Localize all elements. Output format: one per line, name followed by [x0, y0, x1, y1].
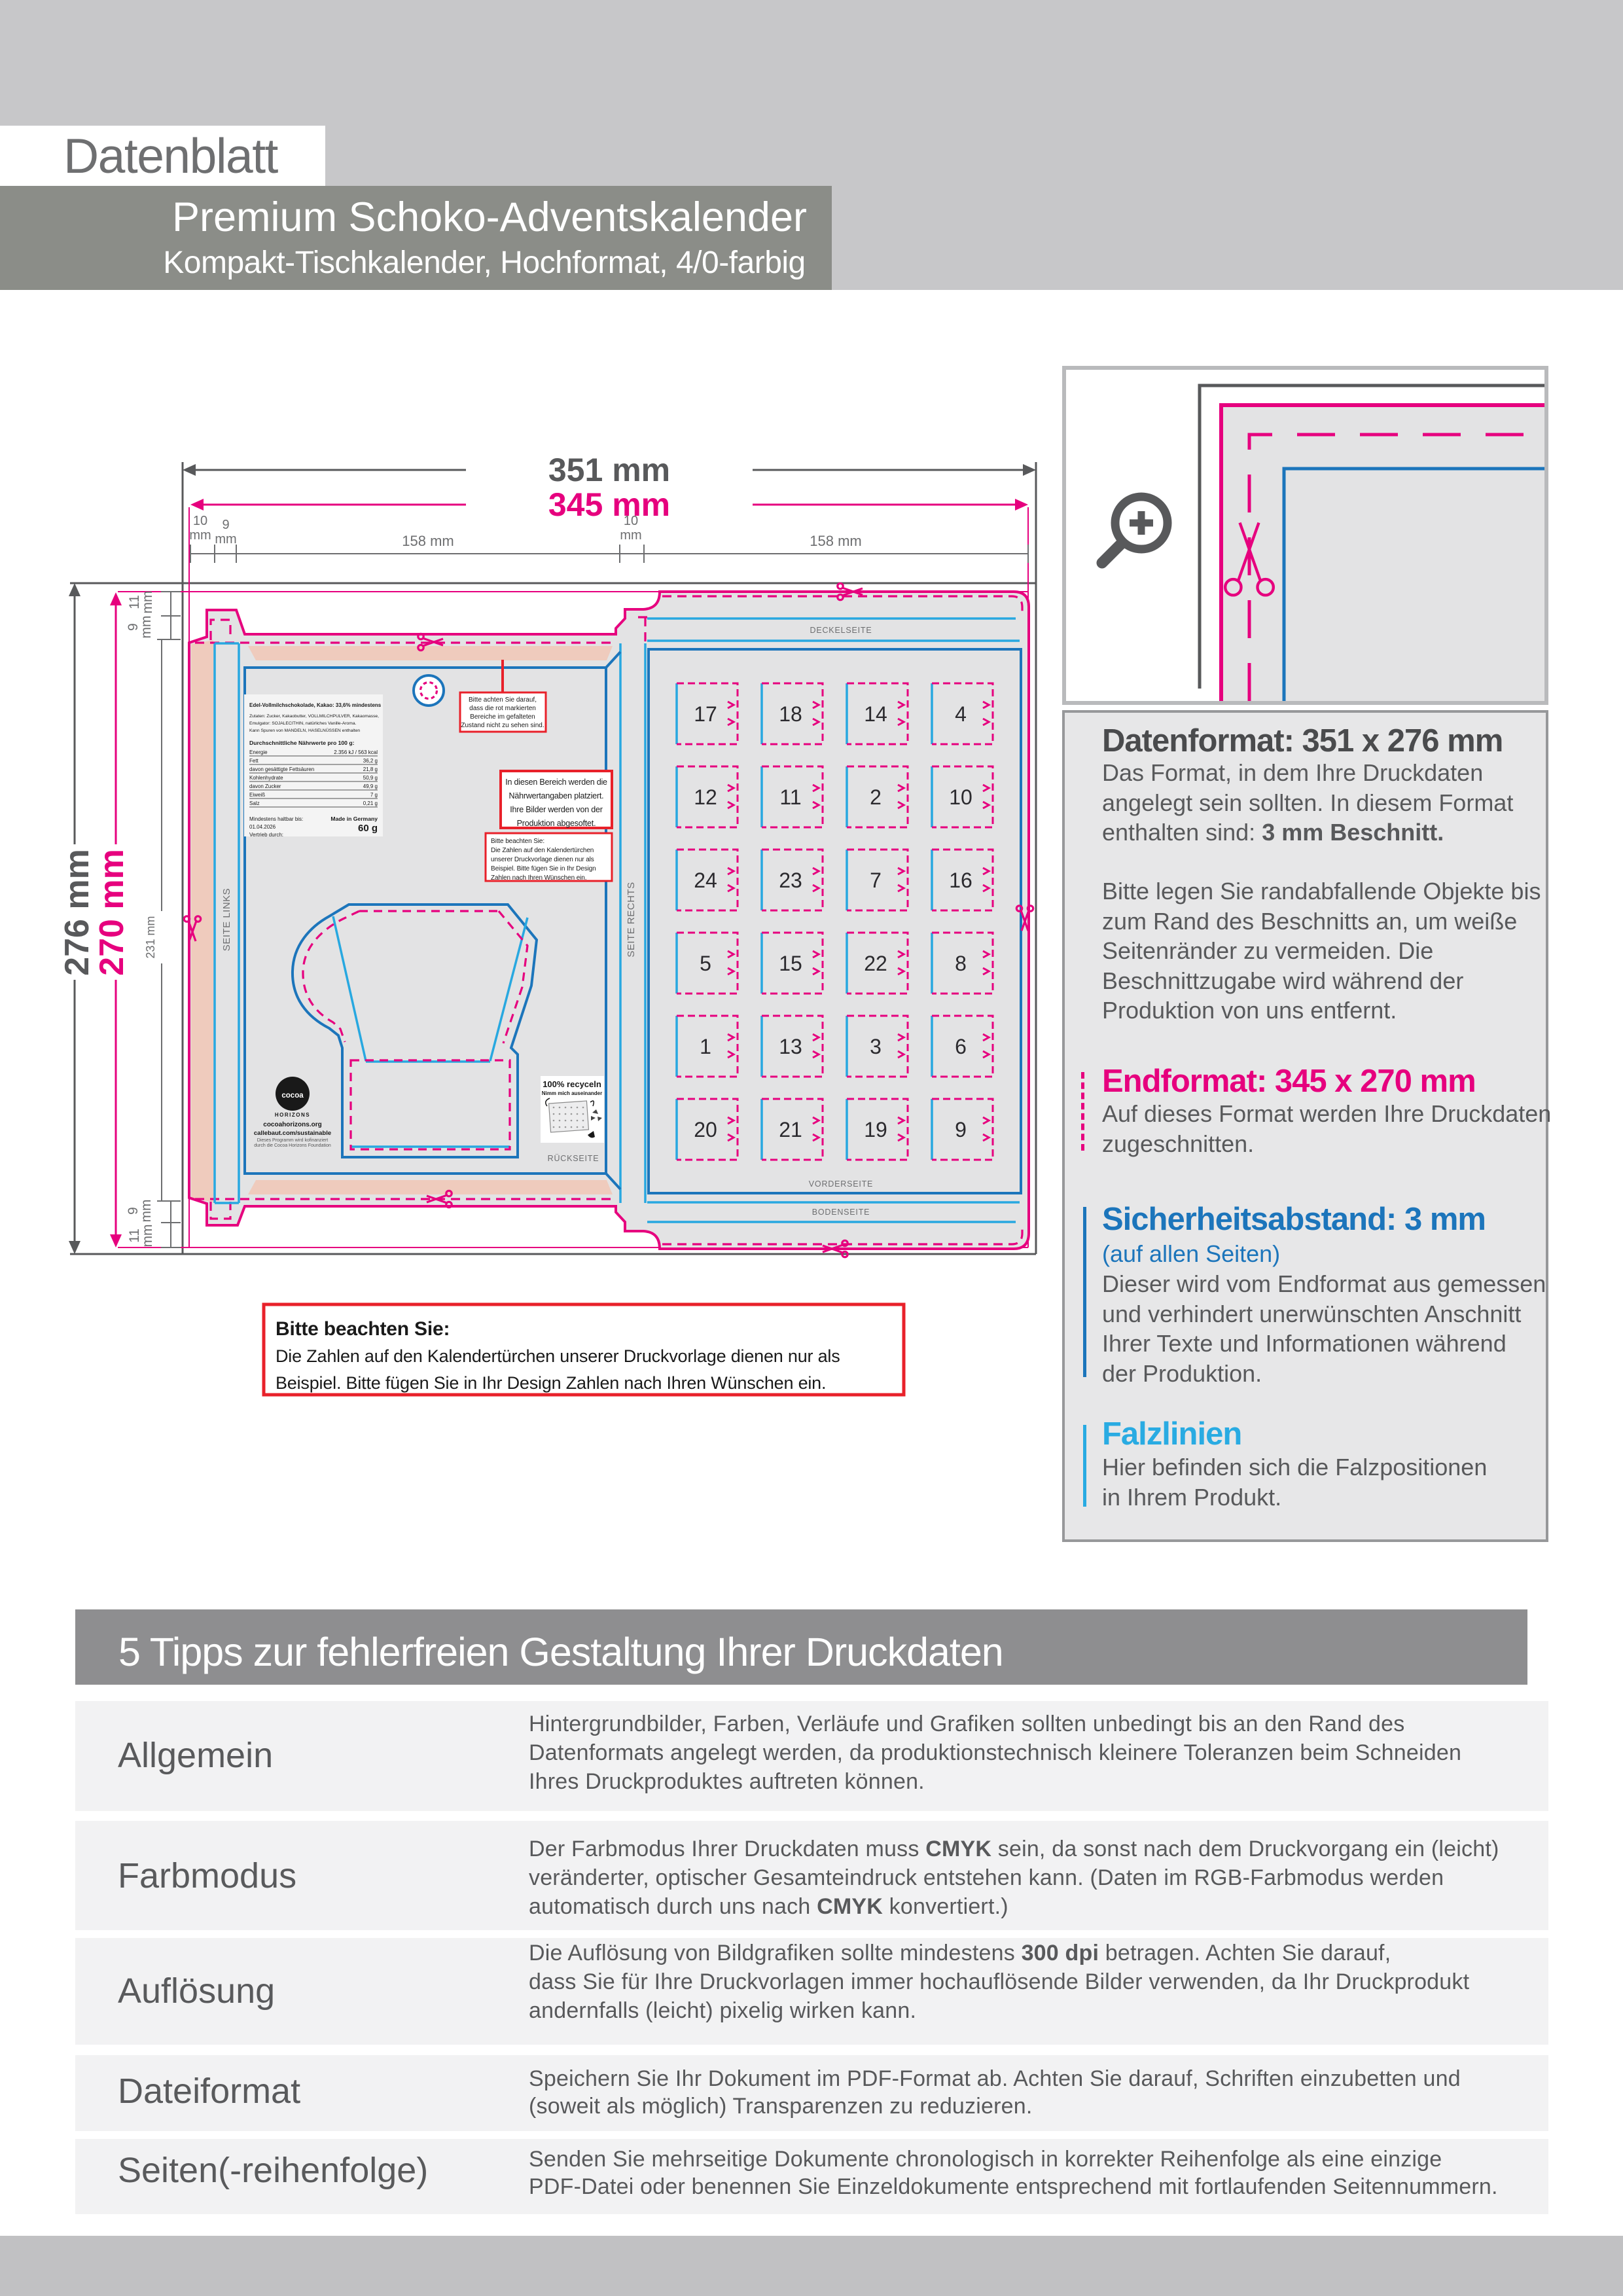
svg-text:mm: mm [139, 1200, 154, 1223]
svg-text:Zustand nicht zu sehen sind.: Zustand nicht zu sehen sind. [461, 722, 544, 729]
svg-text:mm: mm [140, 1225, 155, 1247]
svg-text:7: 7 [870, 869, 882, 892]
svg-text:VORDERSEITE: VORDERSEITE [809, 1179, 873, 1189]
svg-text:9: 9 [222, 518, 229, 532]
svg-text:36,2 g: 36,2 g [363, 758, 378, 764]
svg-text:3: 3 [870, 1035, 882, 1058]
svg-text:In diesen Bereich werden die: In diesen Bereich werden die [505, 778, 607, 787]
svg-text:6: 6 [955, 1035, 967, 1058]
svg-text:12: 12 [694, 785, 717, 809]
svg-text:mm: mm [140, 591, 155, 614]
svg-text:21,8 g: 21,8 g [363, 766, 378, 772]
svg-text:Energie: Energie [249, 749, 268, 755]
svg-text:1: 1 [700, 1035, 711, 1058]
svg-text:18: 18 [779, 702, 802, 726]
svg-text:24: 24 [694, 869, 717, 892]
svg-text:10: 10 [624, 514, 638, 528]
svg-text:mm: mm [215, 532, 236, 547]
svg-text:15: 15 [779, 952, 802, 975]
svg-text:mm: mm [620, 528, 641, 543]
svg-text:21: 21 [779, 1118, 802, 1141]
svg-text:Mindestens haltbar bis:: Mindestens haltbar bis: [249, 816, 303, 822]
svg-text:Bereiche im gefalteten: Bereiche im gefalteten [470, 713, 535, 721]
svg-text:Eiweiß: Eiweiß [249, 792, 265, 798]
svg-text:60 g: 60 g [358, 823, 378, 834]
svg-text:callebaut.com/sustainable: callebaut.com/sustainable [254, 1130, 331, 1137]
svg-text:20: 20 [694, 1118, 717, 1141]
svg-text:Vertrieb durch:: Vertrieb durch: [249, 832, 283, 838]
svg-text:Salz: Salz [249, 800, 260, 806]
svg-text:SEITE RECHTS: SEITE RECHTS [626, 882, 637, 957]
svg-text:270 mm: 270 mm [93, 849, 131, 976]
svg-text:dass die rot markierten: dass die rot markierten [469, 705, 536, 712]
svg-text:Made in Germany: Made in Germany [330, 816, 378, 822]
svg-text:mm: mm [189, 528, 211, 543]
svg-text:Nährwertangaben platziert.: Nährwertangaben platziert. [509, 791, 604, 800]
svg-text:19: 19 [864, 1118, 887, 1141]
svg-text:Zutaten: Zucker, Kakaobutter,: Zutaten: Zucker, Kakaobutter, VOLLMILCHP… [249, 714, 379, 719]
svg-text:davon gesättigte Fettsäuren: davon gesättigte Fettsäuren [249, 766, 314, 772]
svg-text:RÜCKSEITE: RÜCKSEITE [548, 1154, 599, 1163]
svg-text:DECKELSEITE: DECKELSEITE [810, 626, 872, 635]
svg-text:Die Zahlen auf den Kalendertür: Die Zahlen auf den Kalendertürchen [491, 847, 594, 854]
svg-text:unserer Druckvorlage dienen nu: unserer Druckvorlage dienen nur als [491, 856, 594, 863]
svg-text:23: 23 [779, 869, 802, 892]
svg-text:Bitte beachten Sie:: Bitte beachten Sie: [491, 838, 544, 845]
svg-text:Bitte achten Sie darauf,: Bitte achten Sie darauf, [469, 696, 537, 704]
svg-text:Dieses Programm wird kofinanzi: Dieses Programm wird kofinanziert [257, 1138, 329, 1143]
svg-text:22: 22 [864, 952, 887, 975]
svg-text:10: 10 [193, 514, 207, 528]
svg-text:231 mm: 231 mm [144, 916, 157, 958]
svg-text:Zahlen nach Ihren Wünschen ein: Zahlen nach Ihren Wünschen ein. [491, 874, 586, 882]
svg-text:01.04.2026: 01.04.2026 [249, 824, 276, 830]
svg-text:Produktion abgesoftet.: Produktion abgesoftet. [517, 819, 596, 828]
svg-text:4: 4 [955, 702, 967, 726]
svg-text:17: 17 [694, 702, 717, 726]
svg-text:SEITE LINKS: SEITE LINKS [221, 888, 232, 951]
svg-text:49,9 g: 49,9 g [363, 783, 378, 789]
svg-text:Beispiel. Bitte fügen Sie in I: Beispiel. Bitte fügen Sie in Ihr Design … [276, 1373, 826, 1393]
svg-text:Fett: Fett [249, 758, 259, 764]
svg-text:mm: mm [139, 616, 154, 639]
svg-text:158 mm: 158 mm [402, 533, 454, 549]
svg-text:13: 13 [779, 1035, 802, 1058]
svg-text:11: 11 [779, 785, 801, 809]
svg-text:100% recyceln: 100% recyceln [543, 1079, 601, 1089]
svg-text:0,21 g: 0,21 g [363, 800, 378, 806]
svg-text:cocoahorizons.org: cocoahorizons.org [263, 1121, 321, 1128]
svg-text:Edel-Vollmilchschokolade, Kaka: Edel-Vollmilchschokolade, Kakao: 33,6% m… [249, 702, 382, 708]
svg-text:158 mm: 158 mm [810, 533, 861, 549]
svg-text:davon Zucker: davon Zucker [249, 783, 281, 789]
svg-text:HORIZONS: HORIZONS [275, 1112, 310, 1118]
svg-text:16: 16 [949, 869, 972, 892]
svg-text:8: 8 [955, 952, 967, 975]
svg-text:Kann Spuren von MANDELN, HASEL: Kann Spuren von MANDELN, HASELNÜSSEN ent… [249, 728, 360, 733]
svg-text:9: 9 [955, 1118, 967, 1141]
svg-text:345 mm: 345 mm [548, 486, 670, 523]
svg-text:Kohlenhydrate: Kohlenhydrate [249, 775, 283, 781]
svg-text:cocoa: cocoa [281, 1092, 304, 1100]
svg-text:Beispiel. Bitte fügen Sie in I: Beispiel. Bitte fügen Sie in Ihr Design [491, 865, 596, 872]
svg-text:5: 5 [700, 952, 711, 975]
svg-text:2.356 kJ / 563 kcal: 2.356 kJ / 563 kcal [334, 749, 378, 755]
svg-text:2: 2 [870, 785, 882, 809]
svg-text:BODENSEITE: BODENSEITE [812, 1208, 870, 1217]
svg-text:351 mm: 351 mm [548, 452, 670, 488]
svg-text:7 g: 7 g [370, 792, 378, 798]
svg-text:Bitte beachten Sie:: Bitte beachten Sie: [276, 1318, 450, 1340]
svg-text:Die Zahlen auf den Kalendertür: Die Zahlen auf den Kalendertürchen unser… [276, 1346, 840, 1366]
svg-text:Emulgator: SOJALECITHIN, natür: Emulgator: SOJALECITHIN, natürliches Van… [249, 721, 357, 726]
svg-text:Ihre Bilder werden von der: Ihre Bilder werden von der [510, 805, 602, 814]
svg-text:276 mm: 276 mm [58, 849, 96, 976]
svg-text:10: 10 [949, 785, 972, 809]
svg-text:50,9 g: 50,9 g [363, 775, 378, 781]
svg-text:durch die Cocoa Horizons Found: durch die Cocoa Horizons Foundation [254, 1143, 331, 1148]
svg-text:Durchschnittliche Nährwerte pr: Durchschnittliche Nährwerte pro 100 g: [249, 740, 355, 746]
svg-text:14: 14 [864, 702, 887, 726]
svg-text:Nimm mich auseinander: Nimm mich auseinander [542, 1090, 602, 1096]
